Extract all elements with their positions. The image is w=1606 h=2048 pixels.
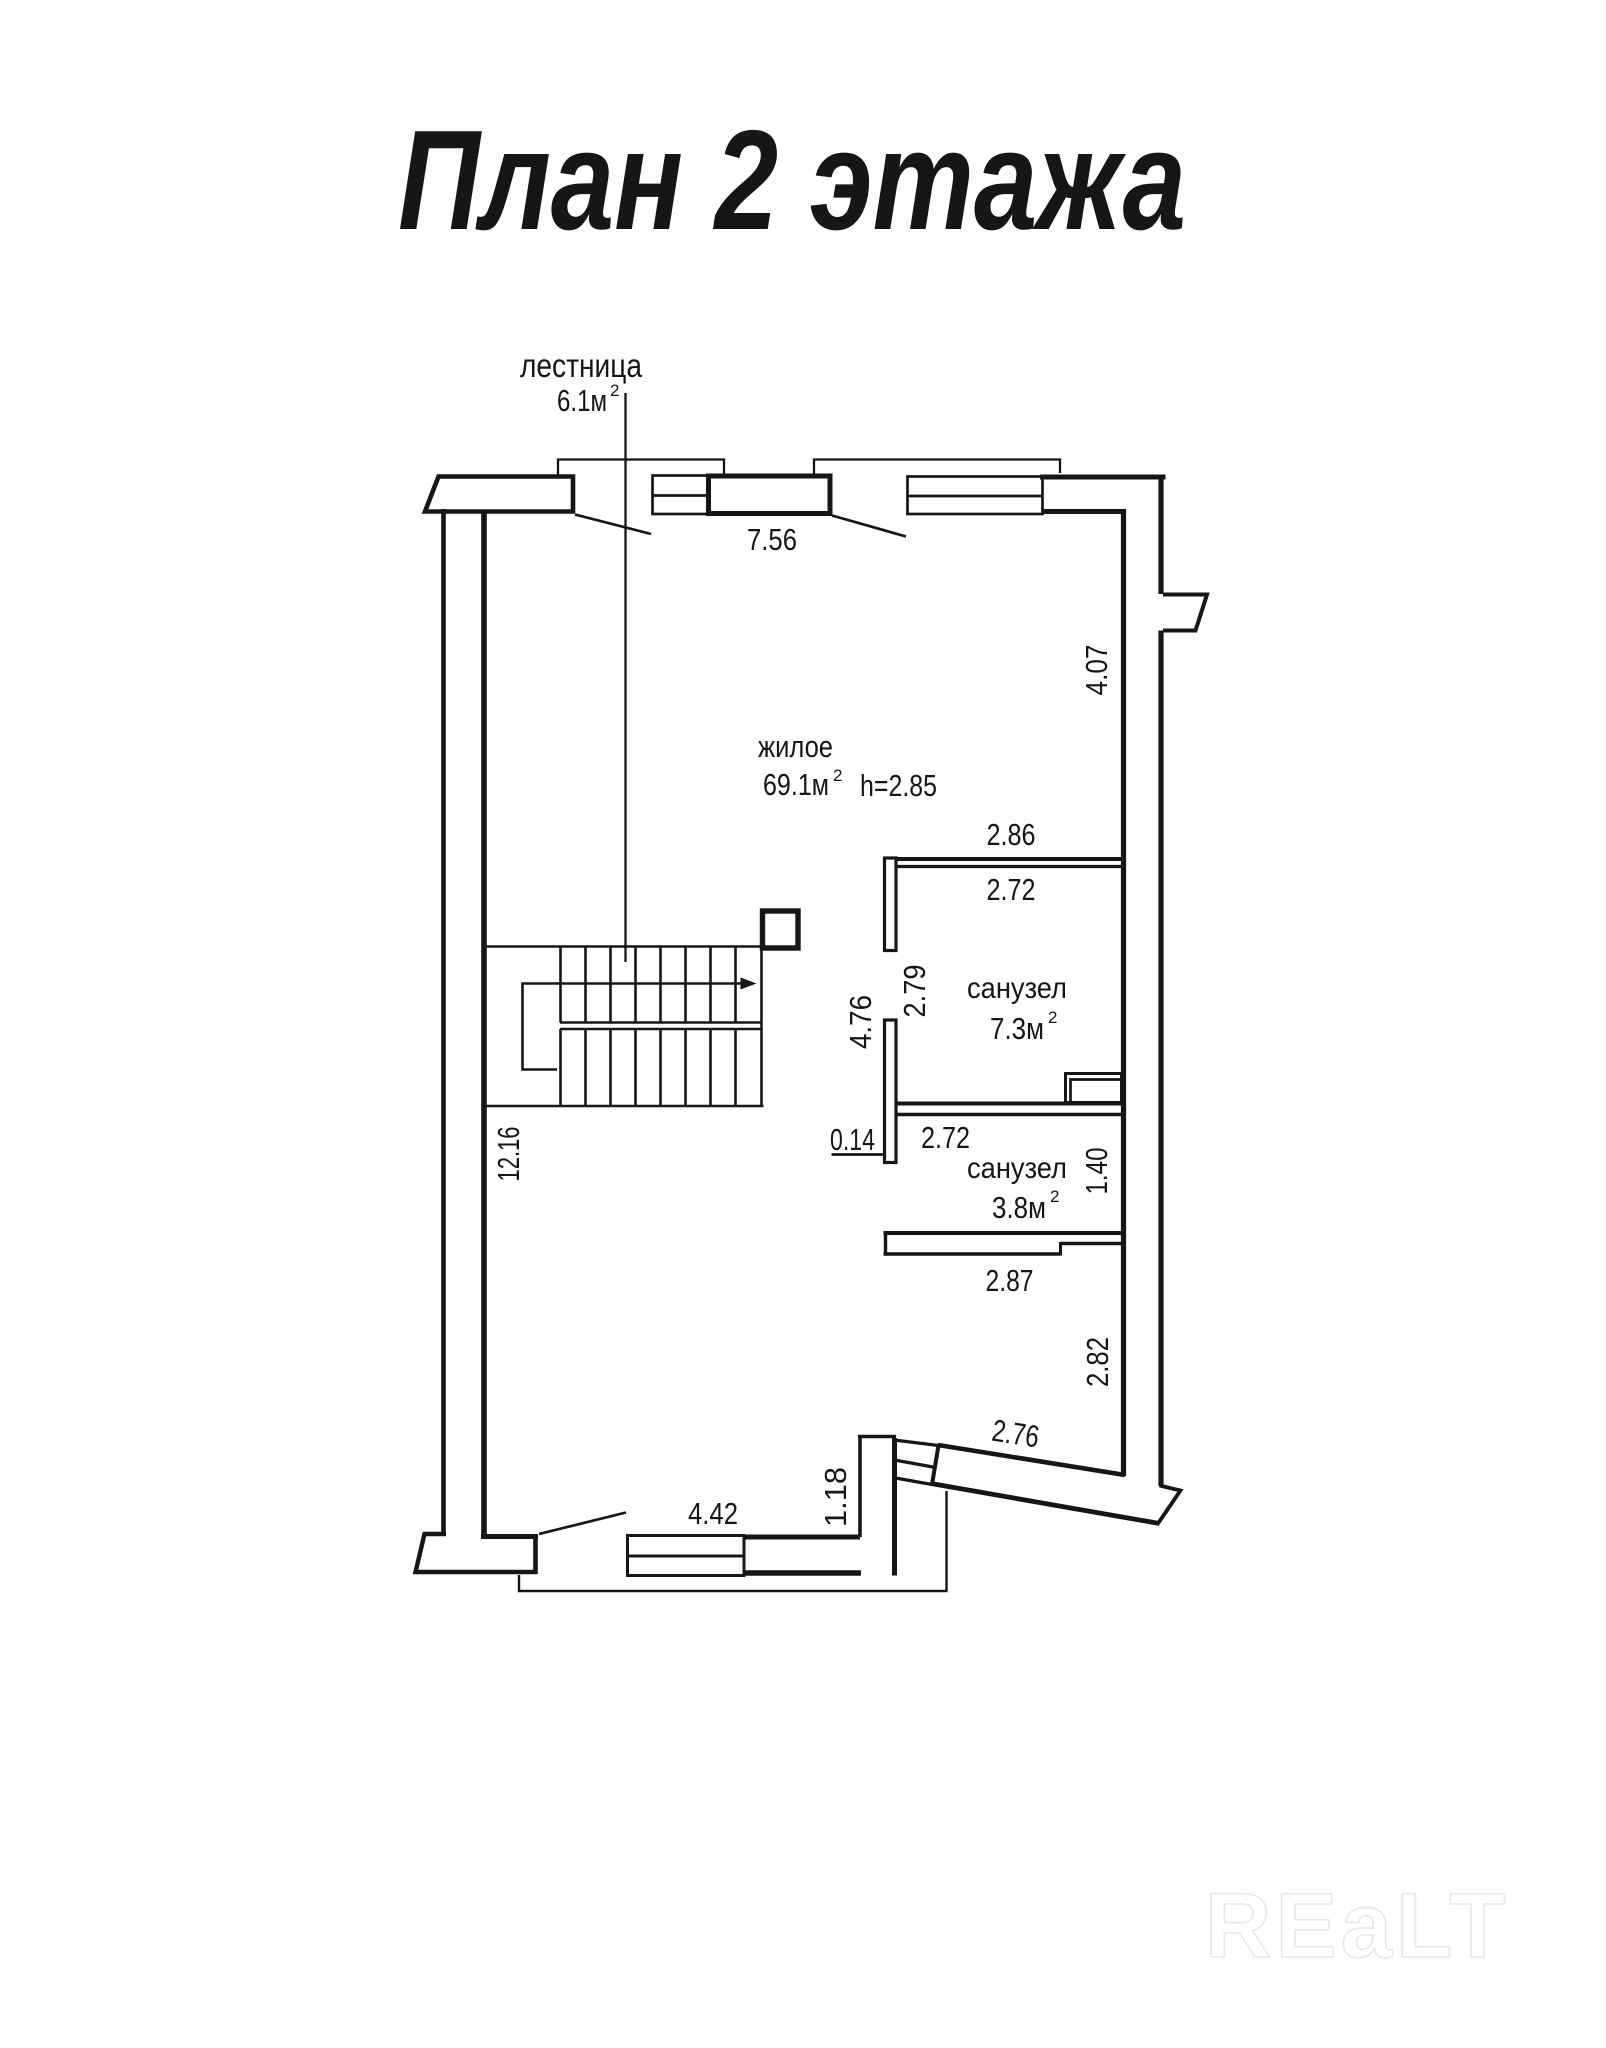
svg-text:7.56: 7.56 [747,522,797,557]
svg-text:2: 2 [1050,1187,1059,1206]
svg-text:6.1м: 6.1м [557,383,607,418]
svg-text:2: 2 [833,766,842,785]
svg-text:12.16: 12.16 [491,1127,526,1182]
svg-text:План 2 этажа: План 2 этажа [398,101,1186,260]
svg-text:2.76: 2.76 [990,1413,1042,1455]
svg-text:h=2.85: h=2.85 [860,768,937,803]
svg-text:2.82: 2.82 [1080,1337,1115,1387]
svg-text:санузел: санузел [967,972,1067,1005]
svg-text:2.72: 2.72 [921,1120,970,1155]
svg-text:4.07: 4.07 [1079,645,1114,696]
svg-text:4.76: 4.76 [843,995,878,1049]
svg-text:2.72: 2.72 [987,872,1036,907]
svg-text:2.79: 2.79 [897,965,932,1018]
svg-text:3.8м: 3.8м [992,1190,1046,1225]
svg-text:4.42: 4.42 [688,1496,738,1531]
svg-text:1.40: 1.40 [1079,1148,1114,1195]
svg-text:7.3м: 7.3м [990,1011,1044,1046]
svg-text:лестница: лестница [520,347,643,384]
svg-text:1.18: 1.18 [818,1467,853,1527]
svg-text:2: 2 [610,381,619,400]
svg-text:2.87: 2.87 [986,1263,1034,1298]
svg-text:REaLT: REaLT [1205,1875,1510,1977]
svg-text:0.14: 0.14 [830,1122,875,1157]
svg-text:санузел: санузел [967,1152,1067,1185]
svg-text:2: 2 [1048,1008,1057,1027]
svg-text:69.1м: 69.1м [763,767,829,802]
svg-text:жилое: жилое [758,729,833,764]
svg-text:2.86: 2.86 [987,817,1036,852]
